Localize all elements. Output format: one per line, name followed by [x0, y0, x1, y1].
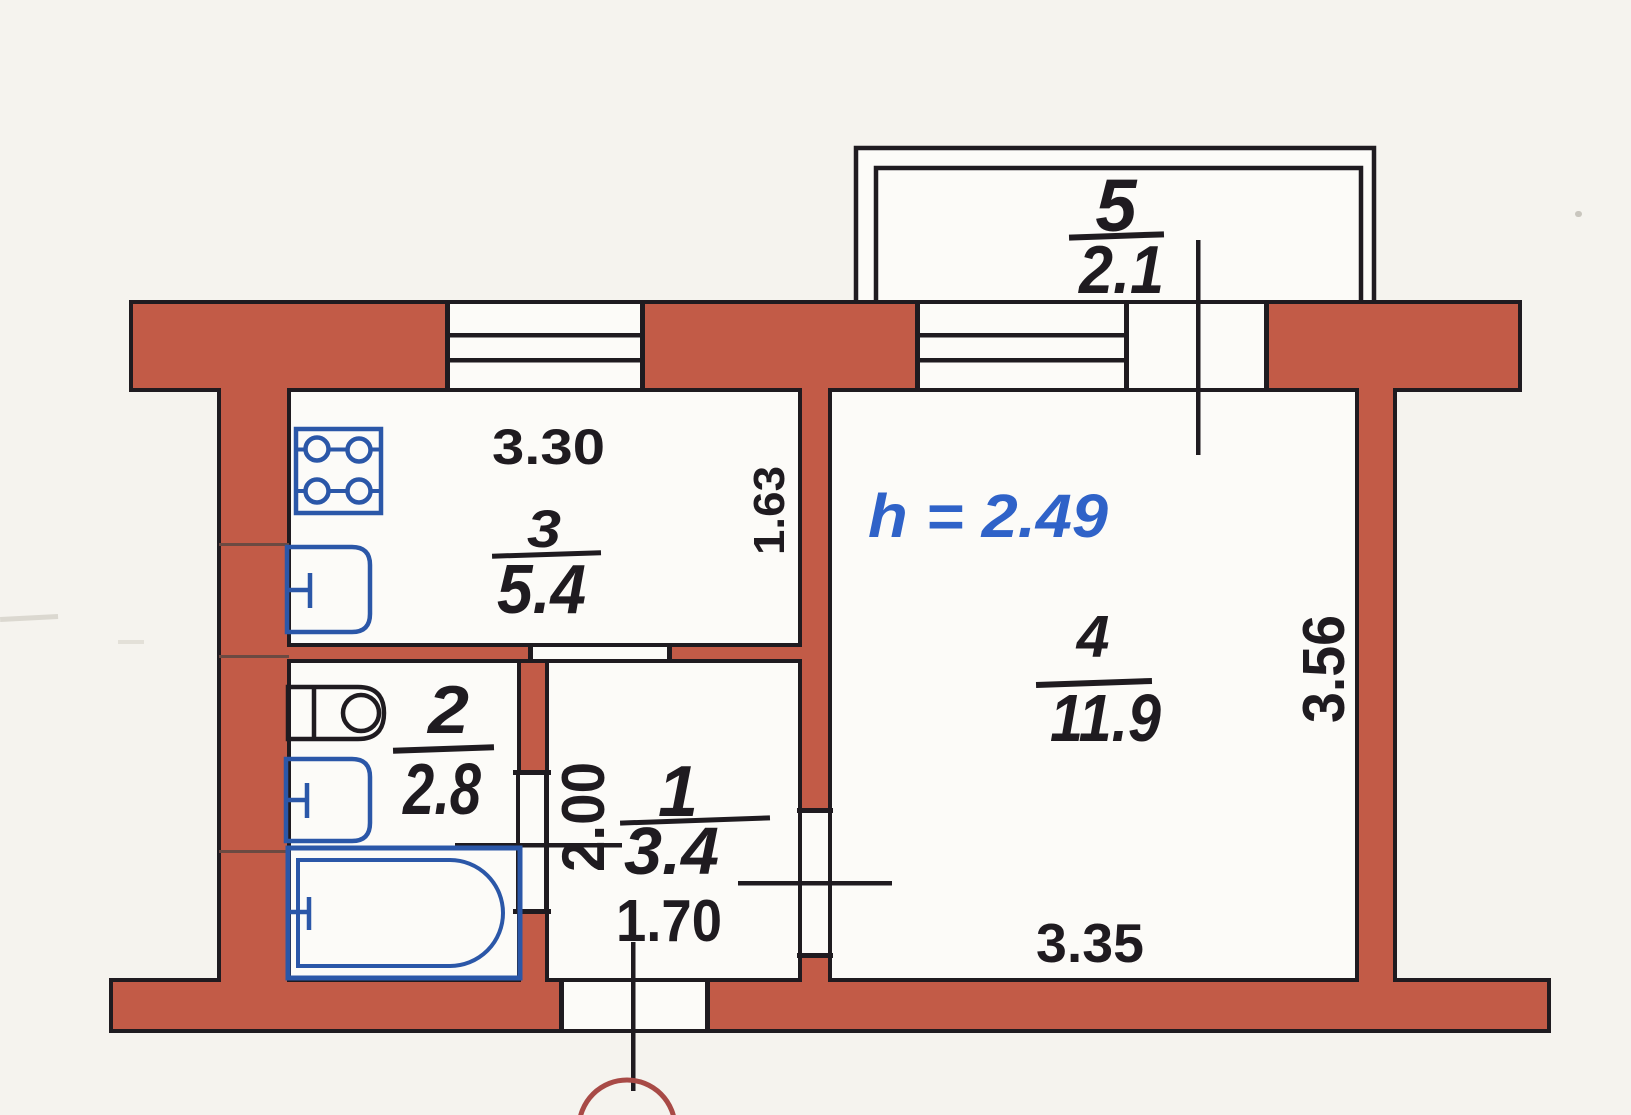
svg-text:2.8: 2.8: [401, 750, 481, 830]
svg-text:2.00: 2.00: [550, 762, 617, 872]
svg-text:4: 4: [1076, 604, 1110, 670]
svg-text:5.4: 5.4: [497, 550, 586, 628]
svg-text:3.35: 3.35: [1036, 912, 1144, 974]
svg-text:11.9: 11.9: [1050, 681, 1161, 756]
svg-text:2: 2: [426, 672, 469, 748]
svg-text:3.4: 3.4: [624, 814, 719, 889]
svg-text:3.56: 3.56: [1291, 615, 1357, 723]
svg-text:1.70: 1.70: [616, 888, 722, 954]
svg-text:3.30: 3.30: [492, 419, 605, 475]
svg-text:2.1: 2.1: [1077, 232, 1164, 308]
svg-text:1.63: 1.63: [745, 466, 794, 555]
svg-text:h = 2.49: h = 2.49: [868, 482, 1108, 550]
